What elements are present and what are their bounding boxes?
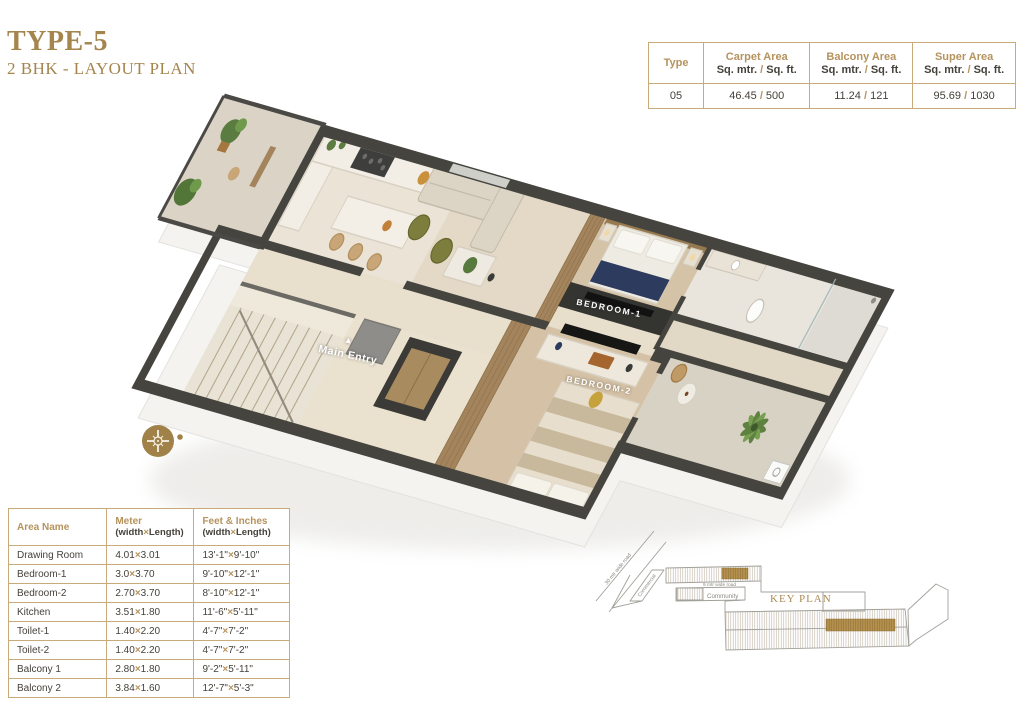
keyplan-highlight-1	[722, 568, 748, 579]
area-table-cell: 46.45 / 500	[704, 84, 810, 109]
area-name-cell: Drawing Room	[9, 546, 107, 565]
keyplan-community-label: Community	[707, 593, 739, 600]
feet-cell: 4'-7"×7'-2"	[194, 641, 290, 660]
meter-cell: 1.40×2.20	[107, 641, 194, 660]
table-row: Type Carpet AreaSq. mtr. / Sq. ft. Balco…	[649, 43, 1016, 84]
feet-cell: 12'-7"×5'-3"	[194, 679, 290, 698]
area-name-cell: Bedroom-1	[9, 565, 107, 584]
area-name-cell: Kitchen	[9, 603, 107, 622]
table-row: Toilet-2 1.40×2.20 4'-7"×7'-2"	[9, 641, 290, 660]
area-name-cell: Toilet-1	[9, 622, 107, 641]
key-plan: 30 mtr wide road 9 mtr wide road Communi…	[596, 531, 948, 650]
meter-cell: 3.84×1.60	[107, 679, 194, 698]
dimension-table: Area Name Meter(width×Length) Feet & Inc…	[8, 508, 290, 698]
feet-cell: 13'-1"×9'-10"	[194, 546, 290, 565]
table-row: 0546.45 / 50011.24 / 12195.69 / 1030	[649, 84, 1016, 109]
area-name-cell: Balcony 2	[9, 679, 107, 698]
feet-cell: 9'-2"×5'-11"	[194, 660, 290, 679]
area-table-header: Type	[649, 43, 704, 84]
meter-cell: 2.80×1.80	[107, 660, 194, 679]
meter-cell: 3.51×1.80	[107, 603, 194, 622]
table-row: Balcony 1 2.80×1.80 9'-2"×5'-11"	[9, 660, 290, 679]
feet-cell: 8'-10"×12'-1"	[194, 584, 290, 603]
table-row: Bedroom-2 2.70×3.70 8'-10"×12'-1"	[9, 584, 290, 603]
table-row: Area Name Meter(width×Length) Feet & Inc…	[9, 509, 290, 546]
table-row: Drawing Room 4.01×3.01 13'-1"×9'-10"	[9, 546, 290, 565]
area-table-cell: 95.69 / 1030	[913, 84, 1016, 109]
keyplan-road30-label: 30 mtr wide road	[604, 552, 633, 586]
page-title: TYPE-5	[7, 28, 196, 56]
keyplan-pointer	[908, 584, 948, 646]
area-table-header: Balcony AreaSq. mtr. / Sq. ft.	[810, 43, 913, 84]
area-name-cell: Toilet-2	[9, 641, 107, 660]
area-table: Type Carpet AreaSq. mtr. / Sq. ft. Balco…	[648, 42, 1016, 109]
table-row: Toilet-1 1.40×2.20 4'-7"×7'-2"	[9, 622, 290, 641]
feet-cell: 4'-7"×7'-2"	[194, 622, 290, 641]
page-subtitle: 2 BHK - LAYOUT PLAN	[7, 59, 196, 79]
dim-table-header: Feet & Inches(width×Length)	[194, 509, 290, 546]
keyplan-road9-label: 9 mtr wide road	[703, 582, 736, 588]
table-row: Bedroom-1 3.0×3.70 9'-10"×12'-1"	[9, 565, 290, 584]
layout-plan-page: 30 mtr wide road 9 mtr wide road Communi…	[0, 0, 1024, 701]
dim-table-header: Area Name	[9, 509, 107, 546]
feet-cell: 11'-6"×5'-11"	[194, 603, 290, 622]
feet-cell: 9'-10"×12'-1"	[194, 565, 290, 584]
meter-cell: 2.70×3.70	[107, 584, 194, 603]
keyplan-highlight-2	[826, 619, 895, 631]
meter-cell: 1.40×2.20	[107, 622, 194, 641]
area-table-cell: 11.24 / 121	[810, 84, 913, 109]
area-table-cell: 05	[649, 84, 704, 109]
area-name-cell: Balcony 1	[9, 660, 107, 679]
table-row: Balcony 2 3.84×1.60 12'-7"×5'-3"	[9, 679, 290, 698]
table-row: Kitchen 3.51×1.80 11'-6"×5'-11"	[9, 603, 290, 622]
area-table-header: Carpet AreaSq. mtr. / Sq. ft.	[704, 43, 810, 84]
title-block: TYPE-5 2 BHK - LAYOUT PLAN	[7, 28, 196, 79]
area-name-cell: Bedroom-2	[9, 584, 107, 603]
keyplan-title: KEY PLAN	[770, 593, 832, 605]
area-table-header: Super AreaSq. mtr. / Sq. ft.	[913, 43, 1016, 84]
main-entry-arrow-icon: ▲	[343, 334, 354, 346]
meter-cell: 3.0×3.70	[107, 565, 194, 584]
meter-cell: 4.01×3.01	[107, 546, 194, 565]
compass-icon	[142, 425, 183, 457]
dim-table-header: Meter(width×Length)	[107, 509, 194, 546]
